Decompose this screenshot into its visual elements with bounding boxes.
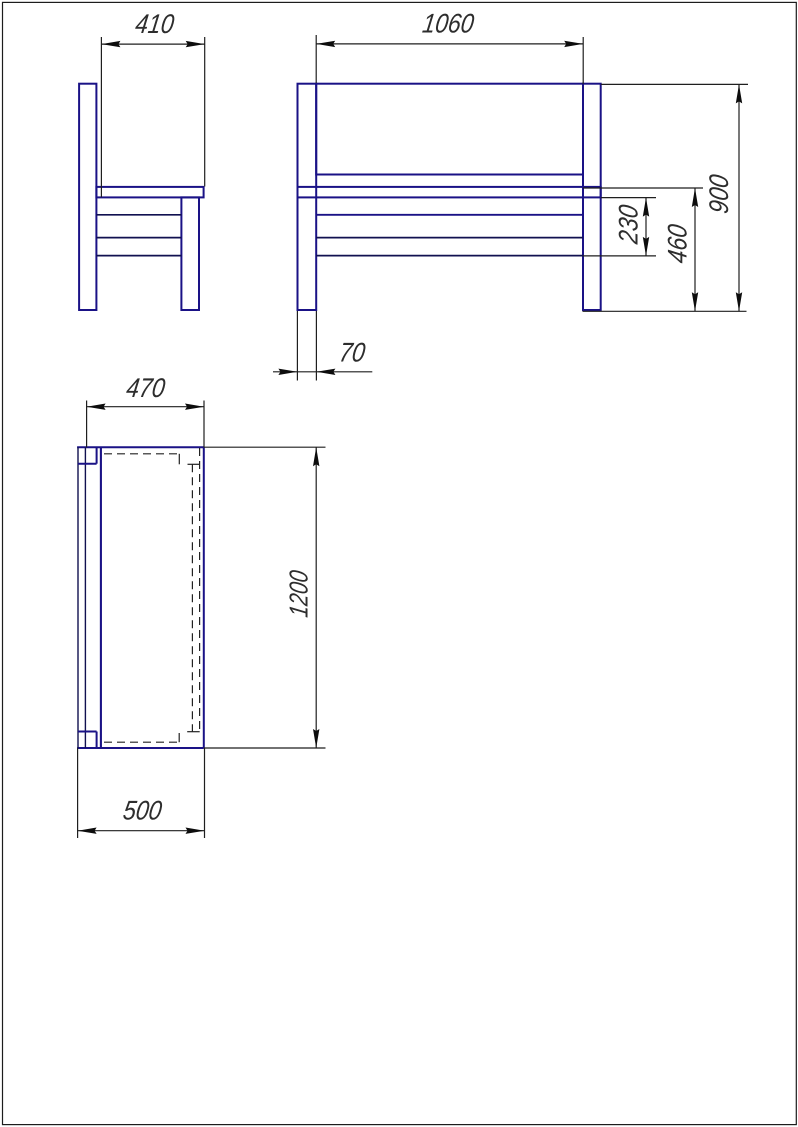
- svg-text:230: 230: [614, 203, 644, 246]
- svg-text:460: 460: [663, 223, 693, 265]
- svg-text:900: 900: [704, 173, 734, 215]
- svg-text:70: 70: [337, 338, 367, 368]
- svg-text:1200: 1200: [286, 569, 315, 619]
- svg-text:1060: 1060: [421, 9, 476, 39]
- svg-text:410: 410: [133, 9, 175, 39]
- svg-text:500: 500: [121, 796, 163, 826]
- svg-text:470: 470: [124, 373, 166, 403]
